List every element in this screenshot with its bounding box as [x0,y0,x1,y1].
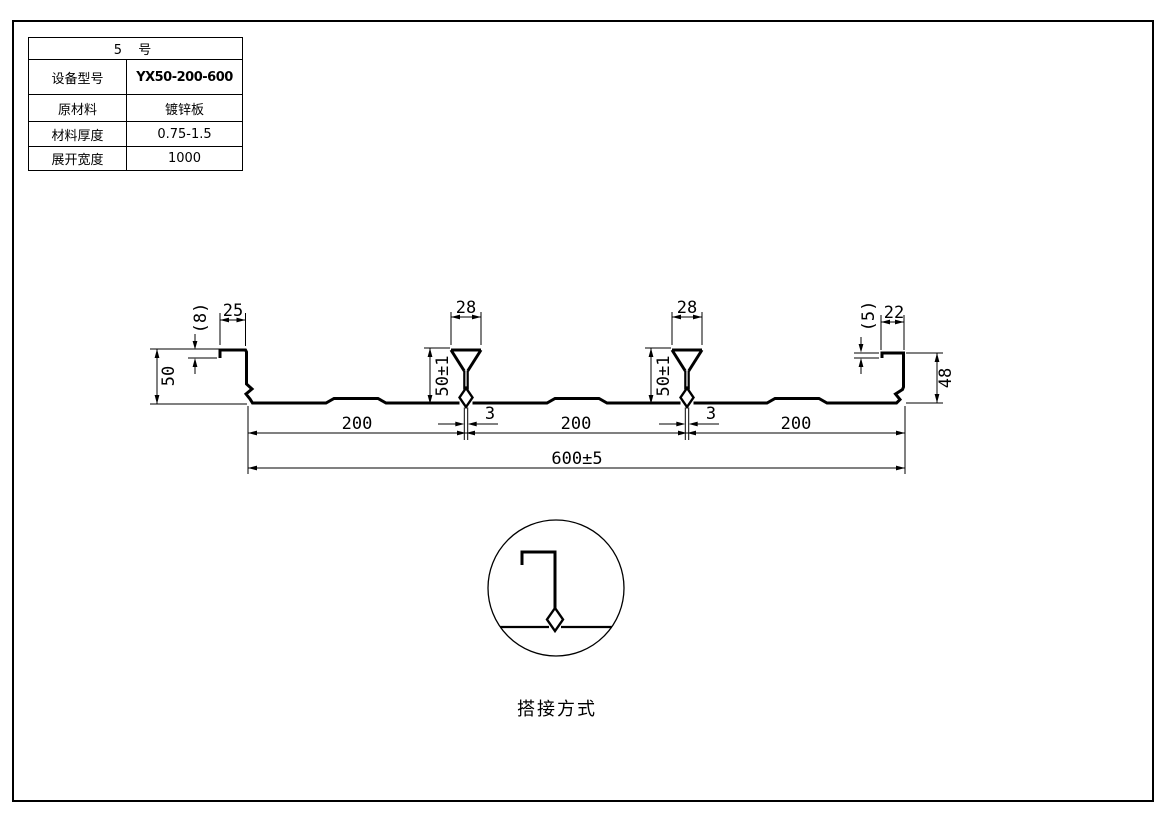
dim-label-left-hook: (8) [191,303,211,334]
detail-caption: 搭接方式 [517,699,597,720]
dim-label-rib2-slot: 3 [706,404,716,424]
dovetail-rib-2 [672,350,702,440]
profile-drawing: 50 (8) 25 28 50±1 [0,0,1169,827]
dim-rib2-width: 28 [672,298,702,345]
detail-hook-profile [522,552,555,610]
dim-label-left-height: 50 [159,366,179,386]
dim-rib2-height: 50±1 [645,348,674,404]
dim-left-height: 50 [150,349,247,404]
dim-label-pitch-2: 200 [561,414,592,434]
dim-rib1-width: 28 [451,298,481,345]
dim-label-pitch-3: 200 [781,414,812,434]
dim-left-hook: (8) [188,303,217,374]
dim-label-left-flange: 25 [223,301,243,321]
drawing-page: { "table": { "title": "5 号", "rows": [ {… [0,0,1169,827]
dim-label-right-flange: 22 [884,303,904,323]
dim-label-overall: 600±5 [551,449,602,469]
dim-right-height: 48 [906,353,956,403]
dim-right-flange: 22 [881,303,904,350]
dim-label-rib1-width: 28 [456,298,476,318]
dim-label-rib2-height: 50±1 [654,356,674,397]
dim-left-flange: 25 [220,301,246,346]
dim-rib1-height: 50±1 [424,348,453,404]
dim-label-rib1-slot: 3 [485,404,495,424]
dim-label-rib1-height: 50±1 [433,356,453,397]
dim-label-right-hook: (5) [859,301,879,332]
dim-label-pitch-1: 200 [342,414,373,434]
lap-joint-detail [488,520,624,656]
dim-label-right-height: 48 [936,368,956,388]
dim-right-hook: (5) [854,301,879,374]
dovetail-rib-1 [451,350,481,440]
detail-crimp-diamond [547,608,563,631]
dim-overall-width: 600±5 [248,449,905,470]
dim-label-rib2-width: 28 [677,298,697,318]
profile-outline [220,350,904,403]
